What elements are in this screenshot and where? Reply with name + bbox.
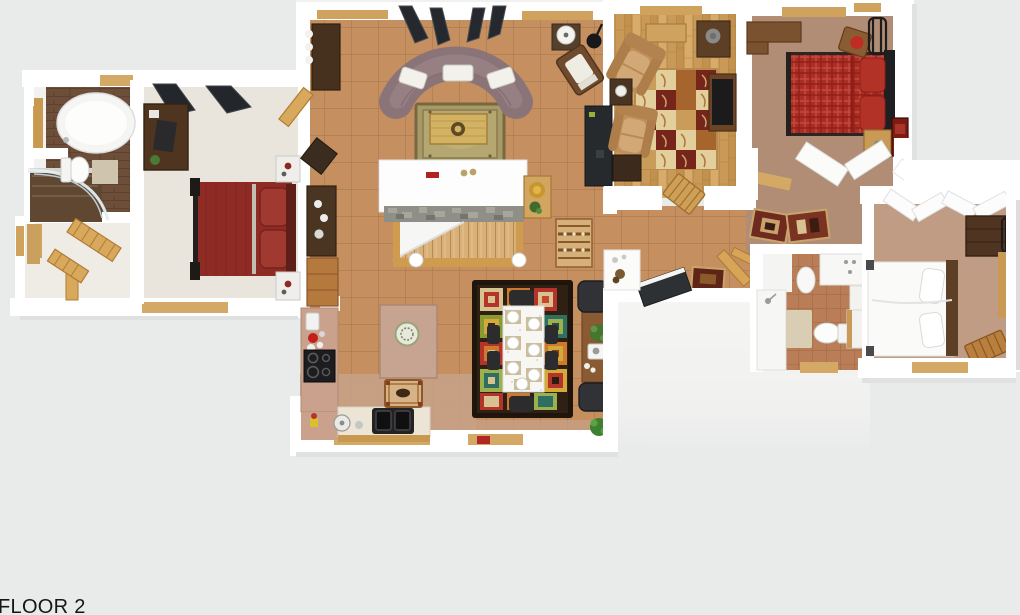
svg-text:FLOOR 2: FLOOR 2 [0,596,86,615]
